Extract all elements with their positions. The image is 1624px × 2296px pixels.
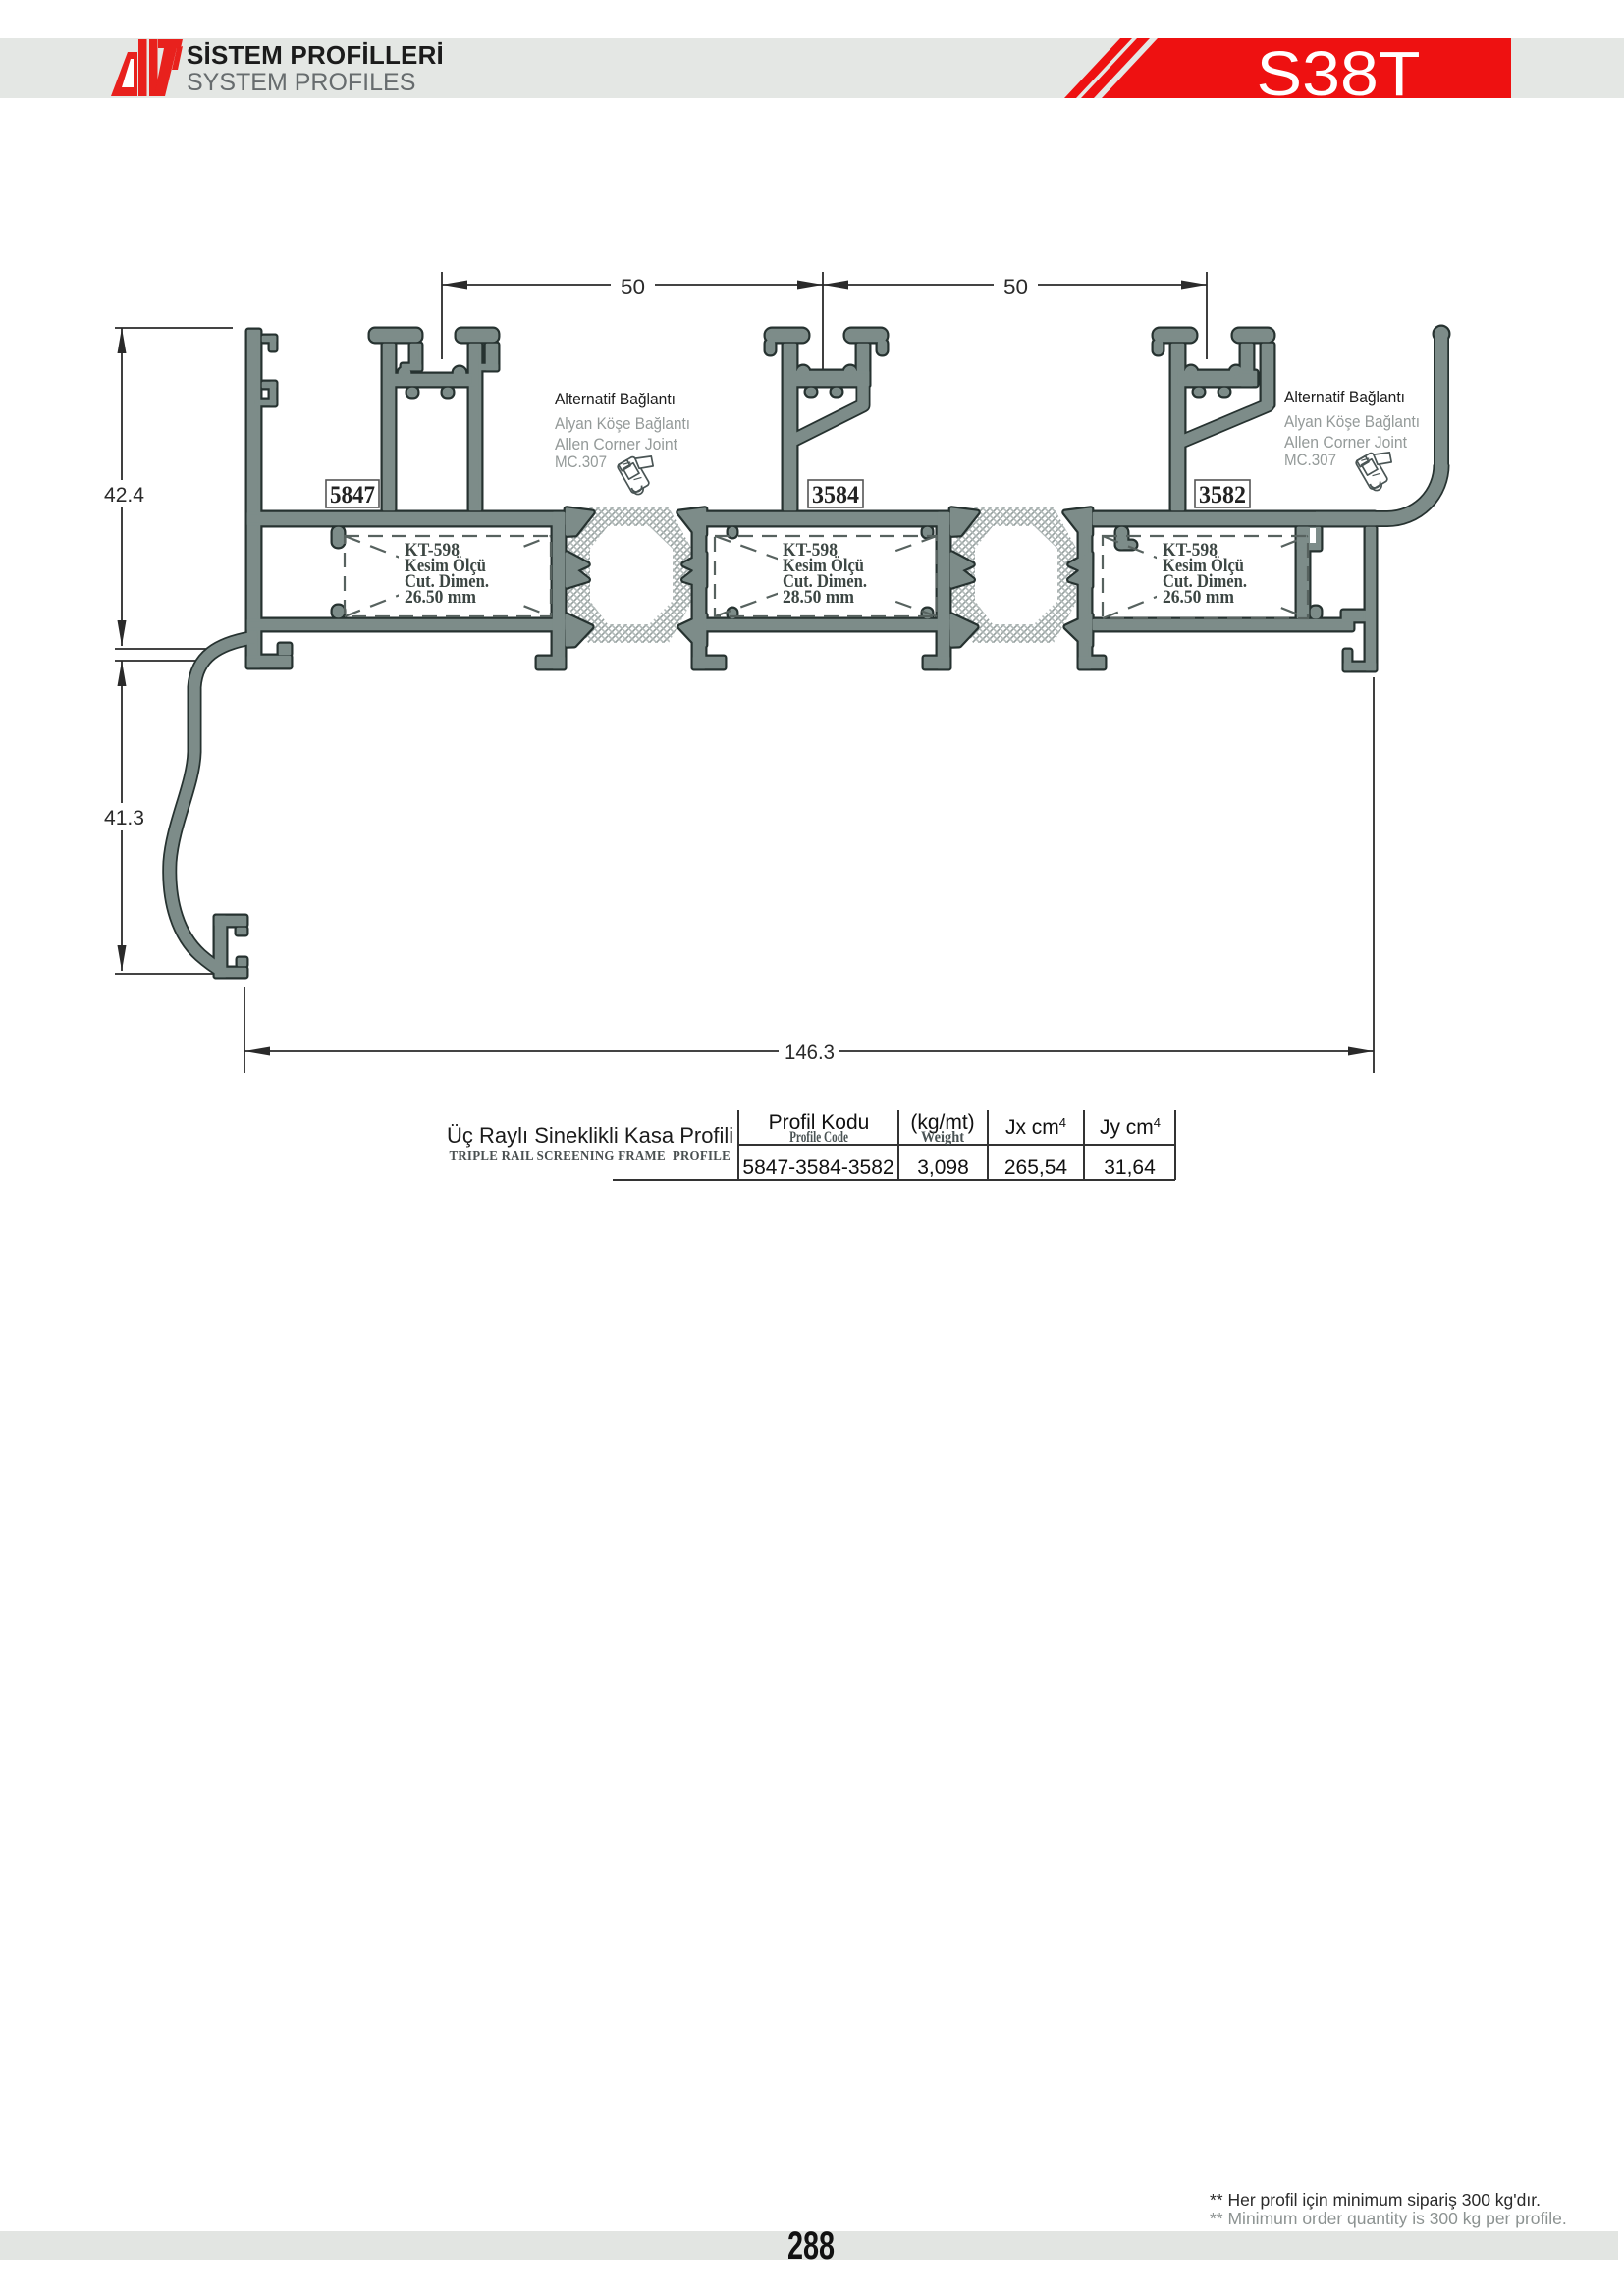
svg-text:MC.307: MC.307 xyxy=(555,453,607,471)
svg-text:50: 50 xyxy=(621,275,645,298)
svg-text:Allen Corner Joint: Allen Corner Joint xyxy=(555,435,677,454)
svg-text:Alternatif Bağlantı: Alternatif Bağlantı xyxy=(1284,388,1405,406)
svg-text:Allen Corner Joint: Allen Corner Joint xyxy=(1284,433,1407,452)
svg-text:26.50 mm: 26.50 mm xyxy=(1163,587,1234,608)
svg-text:146.3: 146.3 xyxy=(785,1041,835,1064)
svg-text:5847: 5847 xyxy=(330,482,375,508)
svg-text:26.50 mm: 26.50 mm xyxy=(405,587,476,608)
svg-text:50: 50 xyxy=(1003,275,1028,298)
svg-text:Alternatif Bağlantı: Alternatif Bağlantı xyxy=(555,390,676,408)
svg-text:42.4: 42.4 xyxy=(104,483,144,507)
svg-text:28.50 mm: 28.50 mm xyxy=(783,587,854,608)
svg-text:41.3: 41.3 xyxy=(104,806,144,829)
svg-text:Alyan Köşe Bağlantı: Alyan Köşe Bağlantı xyxy=(1284,412,1420,431)
svg-text:3582: 3582 xyxy=(1199,482,1246,508)
svg-text:Alyan Köşe Bağlantı: Alyan Köşe Bağlantı xyxy=(555,414,690,433)
svg-text:3584: 3584 xyxy=(812,482,859,508)
svg-text:MC.307: MC.307 xyxy=(1284,451,1336,469)
